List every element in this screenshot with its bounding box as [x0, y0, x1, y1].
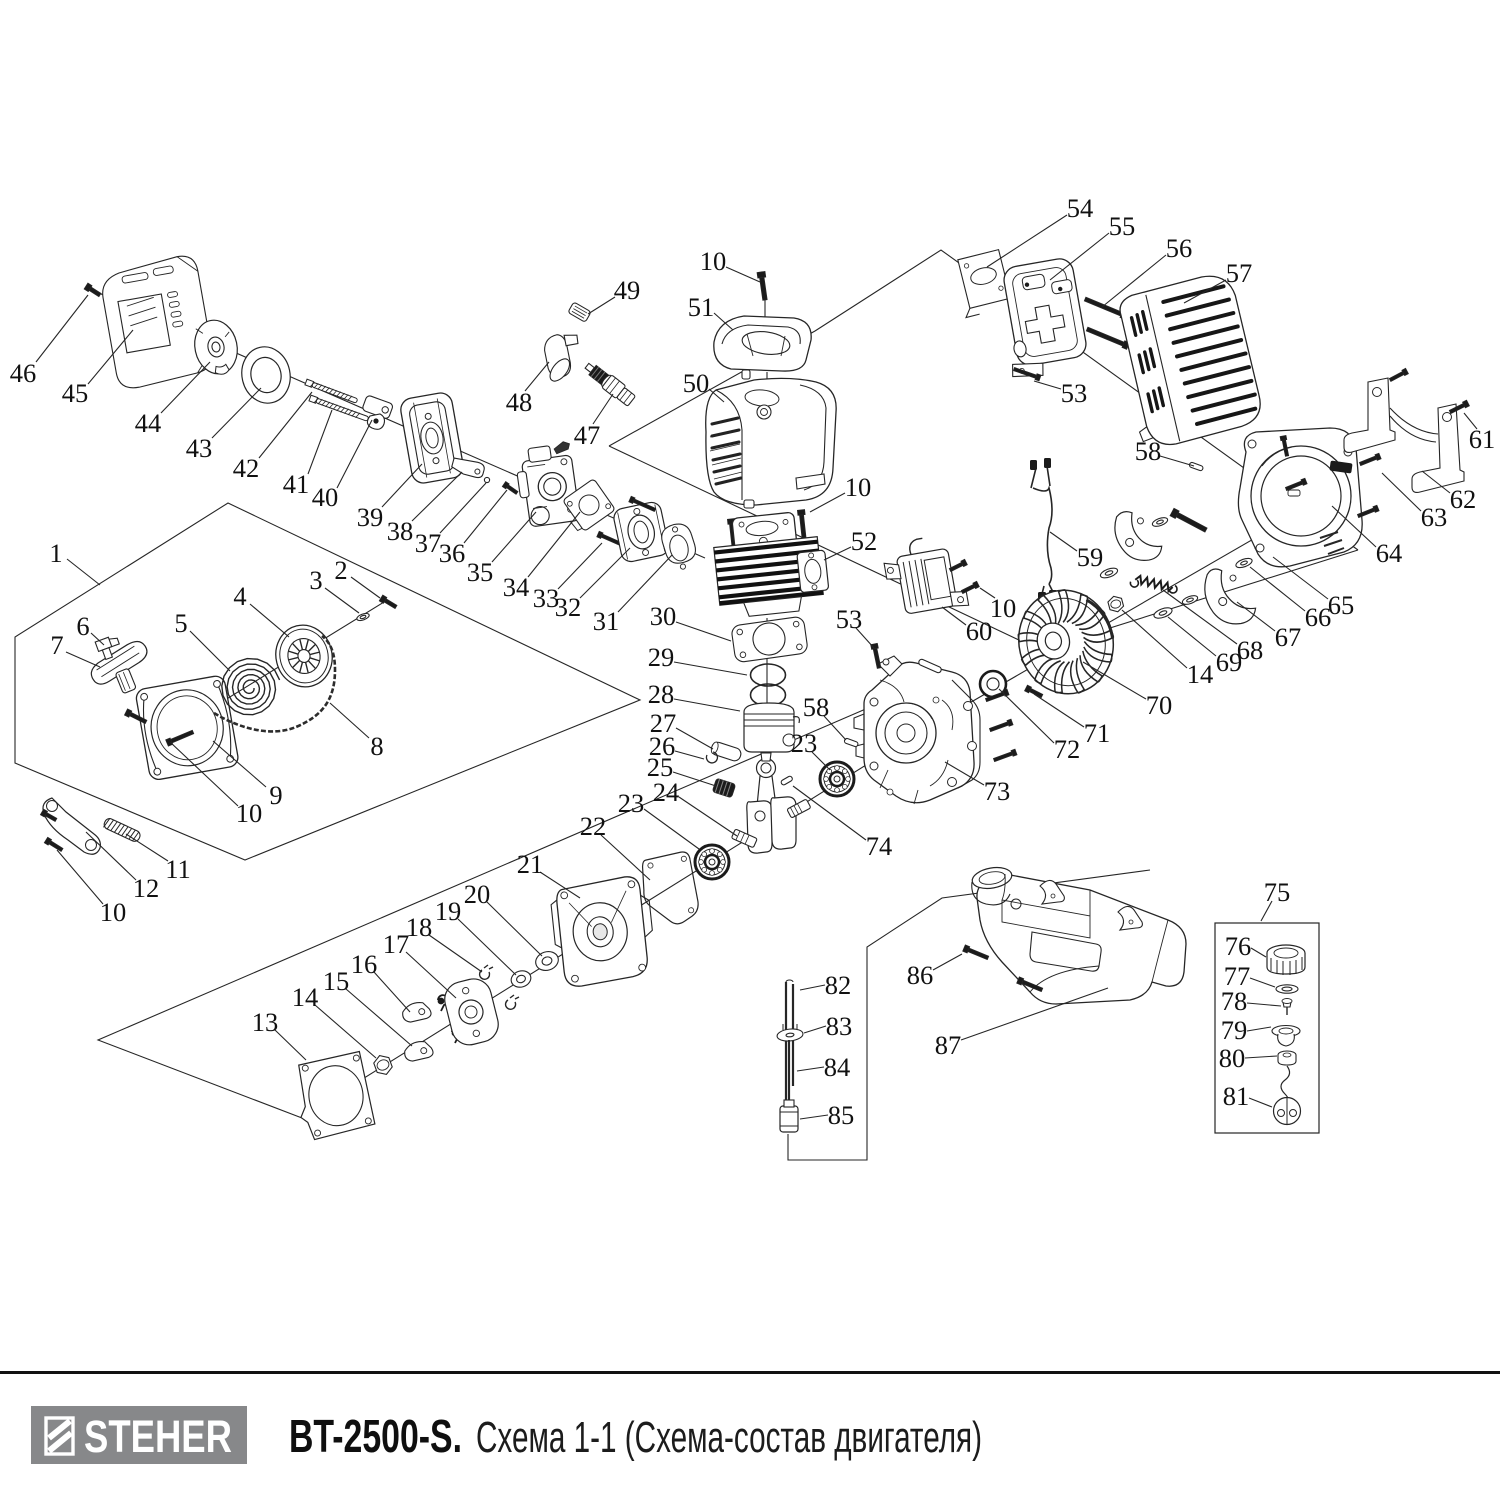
- svg-text:30: 30: [650, 601, 677, 631]
- svg-text:85: 85: [828, 1100, 855, 1130]
- svg-text:BT-2500-S.: BT-2500-S.: [289, 1410, 462, 1462]
- svg-text:53: 53: [1061, 378, 1088, 408]
- svg-text:83: 83: [826, 1011, 853, 1041]
- svg-text:51: 51: [688, 292, 715, 322]
- svg-text:50: 50: [683, 368, 710, 398]
- svg-text:9: 9: [269, 780, 282, 810]
- svg-text:23: 23: [791, 728, 818, 758]
- svg-text:64: 64: [1376, 538, 1403, 568]
- svg-text:7: 7: [50, 630, 63, 660]
- svg-text:60: 60: [966, 616, 993, 646]
- svg-text:STEHER: STEHER: [84, 1411, 232, 1462]
- svg-text:18: 18: [406, 912, 433, 942]
- svg-text:5: 5: [174, 608, 187, 638]
- svg-text:15: 15: [323, 966, 350, 996]
- svg-text:57: 57: [1226, 258, 1253, 288]
- svg-text:62: 62: [1450, 484, 1477, 514]
- svg-text:10: 10: [236, 798, 263, 828]
- svg-text:2: 2: [334, 555, 347, 585]
- svg-text:41: 41: [283, 469, 310, 499]
- svg-text:16: 16: [351, 949, 378, 979]
- svg-text:4: 4: [233, 581, 246, 611]
- svg-text:79: 79: [1221, 1015, 1248, 1045]
- svg-text:6: 6: [76, 611, 89, 641]
- svg-text:32: 32: [555, 592, 582, 622]
- svg-text:53: 53: [836, 604, 863, 634]
- svg-text:14: 14: [1187, 659, 1214, 689]
- svg-text:75: 75: [1264, 877, 1291, 907]
- svg-text:24: 24: [653, 777, 680, 807]
- svg-text:23: 23: [618, 788, 645, 818]
- svg-text:78: 78: [1221, 986, 1248, 1016]
- svg-text:82: 82: [825, 970, 852, 1000]
- svg-text:44: 44: [135, 408, 162, 438]
- svg-text:10: 10: [990, 593, 1017, 623]
- svg-text:39: 39: [357, 502, 384, 532]
- svg-text:12: 12: [133, 873, 160, 903]
- svg-text:81: 81: [1223, 1081, 1250, 1111]
- svg-text:29: 29: [648, 642, 675, 672]
- svg-text:55: 55: [1109, 211, 1136, 241]
- svg-text:48: 48: [506, 387, 533, 417]
- svg-text:73: 73: [984, 776, 1011, 806]
- svg-text:69: 69: [1216, 647, 1243, 677]
- svg-text:10: 10: [845, 472, 872, 502]
- svg-text:76: 76: [1225, 931, 1252, 961]
- svg-text:45: 45: [62, 378, 89, 408]
- svg-text:87: 87: [935, 1030, 962, 1060]
- svg-text:65: 65: [1328, 590, 1355, 620]
- svg-text:10: 10: [700, 246, 727, 276]
- svg-text:86: 86: [907, 960, 934, 990]
- svg-text:1: 1: [49, 538, 62, 568]
- svg-text:19: 19: [435, 896, 462, 926]
- svg-text:34: 34: [503, 572, 530, 602]
- svg-text:22: 22: [580, 811, 607, 841]
- svg-text:37: 37: [415, 528, 442, 558]
- svg-text:63: 63: [1421, 502, 1448, 532]
- svg-text:43: 43: [186, 433, 213, 463]
- svg-text:3: 3: [309, 565, 322, 595]
- svg-text:49: 49: [614, 275, 641, 305]
- svg-text:59: 59: [1077, 542, 1104, 572]
- svg-text:84: 84: [824, 1052, 851, 1082]
- svg-text:35: 35: [467, 557, 494, 587]
- svg-text:56: 56: [1166, 233, 1193, 263]
- svg-text:31: 31: [593, 606, 620, 636]
- svg-text:46: 46: [10, 358, 37, 388]
- svg-text:67: 67: [1275, 622, 1302, 652]
- svg-text:70: 70: [1146, 690, 1173, 720]
- svg-text:47: 47: [574, 420, 601, 450]
- svg-text:72: 72: [1054, 734, 1081, 764]
- svg-text:61: 61: [1469, 424, 1496, 454]
- svg-text:58: 58: [803, 692, 830, 722]
- svg-text:71: 71: [1084, 718, 1111, 748]
- svg-text:38: 38: [387, 516, 414, 546]
- svg-text:58: 58: [1135, 436, 1162, 466]
- svg-text:80: 80: [1219, 1043, 1246, 1073]
- svg-text:66: 66: [1305, 602, 1332, 632]
- svg-text:20: 20: [464, 879, 491, 909]
- svg-text:42: 42: [233, 453, 260, 483]
- svg-text:52: 52: [851, 526, 878, 556]
- svg-text:21: 21: [517, 849, 544, 879]
- svg-text:8: 8: [370, 731, 383, 761]
- svg-text:40: 40: [312, 482, 339, 512]
- svg-text:11: 11: [165, 854, 191, 884]
- svg-text:74: 74: [866, 831, 893, 861]
- svg-text:Схема 1-1 (Схема-состав двигат: Схема 1-1 (Схема-состав двигателя): [476, 1413, 982, 1462]
- svg-text:13: 13: [252, 1007, 279, 1037]
- svg-text:36: 36: [439, 538, 466, 568]
- svg-text:54: 54: [1067, 193, 1094, 223]
- svg-text:10: 10: [100, 897, 127, 927]
- svg-text:28: 28: [648, 679, 675, 709]
- svg-text:14: 14: [292, 982, 319, 1012]
